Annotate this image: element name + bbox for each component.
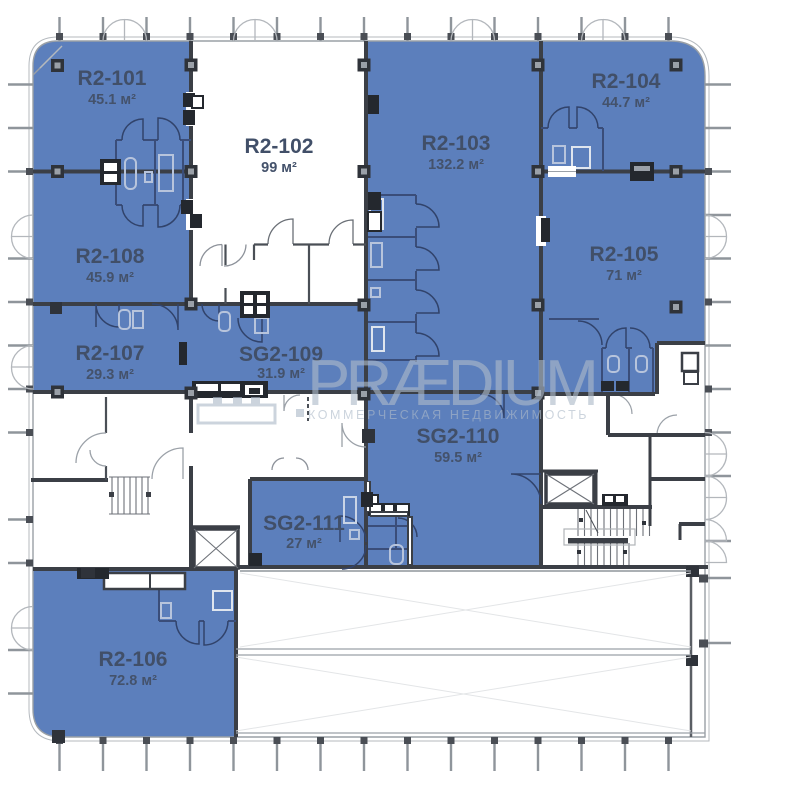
svg-text:71 м²: 71 м²	[606, 268, 642, 284]
svg-text:44.7 м²: 44.7 м²	[602, 95, 650, 111]
svg-text:R2-107: R2-107	[76, 342, 145, 365]
svg-text:R2-101: R2-101	[78, 67, 147, 90]
svg-text:R2-103: R2-103	[422, 132, 491, 155]
svg-text:72.8 м²: 72.8 м²	[109, 673, 157, 689]
svg-text:59.5 м²: 59.5 м²	[434, 450, 482, 466]
svg-text:R2-108: R2-108	[76, 245, 145, 268]
svg-text:132.2 м²: 132.2 м²	[428, 157, 484, 173]
svg-text:КОММЕРЧЕСКАЯ НЕДВИЖИМОСТЬ: КОММЕРЧЕСКАЯ НЕДВИЖИМОСТЬ	[308, 408, 589, 422]
svg-text:SG2-111: SG2-111	[263, 512, 345, 535]
svg-text:45.9 м²: 45.9 м²	[86, 270, 134, 286]
svg-text:99 м²: 99 м²	[261, 160, 297, 176]
svg-text:31.9 м²: 31.9 м²	[257, 366, 305, 382]
svg-text:R2-102: R2-102	[245, 135, 314, 158]
svg-text:R2-106: R2-106	[99, 648, 168, 671]
svg-text:45.1 м²: 45.1 м²	[88, 92, 136, 108]
svg-text:R2-105: R2-105	[590, 243, 659, 266]
svg-text:27 м²: 27 м²	[286, 536, 322, 552]
svg-text:R2-104: R2-104	[592, 70, 661, 93]
svg-text:SG2-110: SG2-110	[417, 425, 500, 448]
svg-text:29.3 м²: 29.3 м²	[86, 367, 134, 383]
